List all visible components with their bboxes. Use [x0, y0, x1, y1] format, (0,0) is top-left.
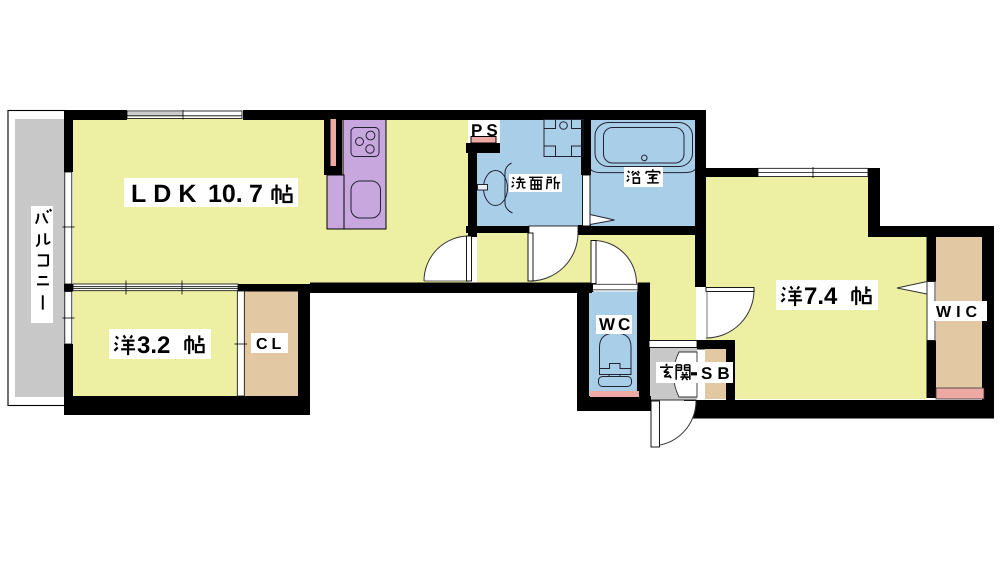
svg-text:WC: WC [599, 315, 633, 334]
svg-text:SB: SB [701, 364, 735, 383]
svg-text:LDK: LDK [131, 180, 203, 208]
svg-text:10.: 10. [208, 180, 243, 208]
svg-text:3.2: 3.2 [137, 332, 170, 359]
svg-text:CL: CL [256, 336, 285, 353]
svg-text:7.4: 7.4 [804, 283, 838, 310]
svg-text:WIC: WIC [936, 304, 982, 321]
svg-text:PS: PS [471, 121, 502, 140]
svg-text:7: 7 [249, 180, 263, 208]
